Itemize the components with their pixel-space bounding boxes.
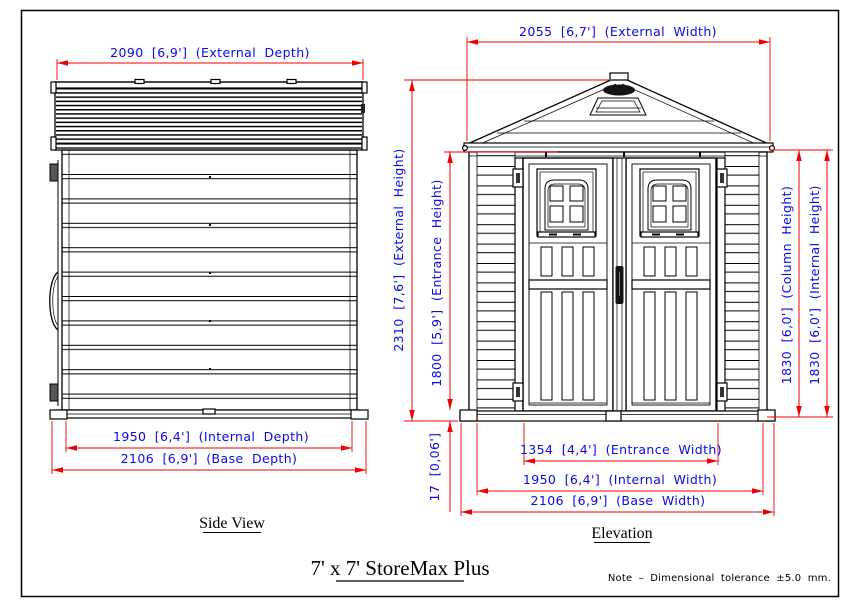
- side-door-handle: [50, 272, 58, 330]
- window-sill: [538, 232, 595, 237]
- left-jamb: [515, 158, 523, 411]
- external-depth-label: 2090 [6,9'] (External Depth): [110, 45, 310, 60]
- column-height-label: 1830 [6,0'] (Column Height): [779, 186, 794, 385]
- entrance-height-label: 1800 [5,9'] (Entrance Height): [429, 179, 444, 386]
- internal-width-label: 1950 [6,4'] (Internal Width): [523, 472, 717, 487]
- right-siding-panel: [725, 152, 759, 411]
- center-stiles: [613, 158, 626, 411]
- eave-board: [463, 143, 775, 152]
- dim-external-depth: 2090 [6,9'] (External Depth): [57, 45, 363, 80]
- roof-notch: [287, 80, 296, 84]
- dim-column-height: 1830 [6,0'] (Column Height): [767, 150, 833, 417]
- tolerance-note: Note – Dimensional tolerance ±5.0 mm.: [608, 573, 831, 584]
- drawing-sheet: 2090 [6,9'] (External Depth) 1950 [6,4']…: [0, 0, 860, 608]
- side-view: 2090 [6,9'] (External Depth) 1950 [6,4']…: [50, 45, 368, 533]
- internal-depth-label: 1950 [6,4'] (Internal Depth): [113, 429, 309, 444]
- base-depth-label: 2106 [6,9'] (Base Depth): [121, 451, 298, 466]
- drawing-title: 7' x 7' StoreMax Plus: [310, 556, 489, 580]
- elevation-base: [460, 410, 775, 421]
- external-height-label: 2310 [7,6'] (External Height): [391, 148, 406, 351]
- dim-base-width: 2106 [6,9'] (Base Width): [461, 423, 774, 516]
- gable-vent-icon: [590, 98, 646, 115]
- roof-apex-cap: [610, 73, 628, 80]
- left-siding-panel: [477, 152, 515, 411]
- base-height-label: 17 [0,06']: [427, 433, 442, 502]
- roof-notch: [135, 80, 144, 84]
- side-view-roof: [51, 80, 367, 151]
- brand-logo: [603, 85, 635, 96]
- dim-internal-depth: 1950 [6,4'] (Internal Depth): [66, 421, 352, 452]
- left-door: [523, 158, 613, 411]
- entrance-width-label: 1354 [4,4'] (Entrance Width): [520, 442, 722, 457]
- elevation-view: 2055 [6,7'] (External Width) 2310 [7,6']…: [391, 24, 833, 543]
- side-view-wall: [58, 150, 357, 410]
- door-rail: [529, 280, 607, 289]
- elevation-label: Elevation: [591, 525, 652, 542]
- dim-internal-height: 1830 [6,0'] (Internal Height): [807, 150, 827, 417]
- external-width-label: 2055 [6,7'] (External Width): [519, 24, 717, 39]
- base-foot: [758, 410, 775, 421]
- base-foot: [606, 411, 621, 421]
- side-hinge-top: [50, 164, 58, 181]
- dim-internal-width: 1950 [6,4'] (Internal Width): [477, 423, 763, 495]
- roof-latch: [361, 104, 365, 113]
- door-window: [537, 169, 596, 237]
- base-width-label: 2106 [6,9'] (Base Width): [531, 493, 706, 508]
- elevation-roof: [463, 73, 775, 152]
- roof-notch: [211, 80, 220, 84]
- base-foot: [50, 410, 67, 419]
- technical-drawing: 2090 [6,9'] (External Depth) 1950 [6,4']…: [0, 0, 860, 608]
- double-doors: [513, 158, 727, 411]
- right-door: [626, 158, 716, 411]
- dim-entrance-width: 1354 [4,4'] (Entrance Width): [520, 423, 722, 465]
- dim-base-height: 17 [0,06']: [427, 421, 450, 512]
- side-view-base: [50, 409, 368, 419]
- base-foot: [203, 409, 215, 414]
- side-view-label: Side View: [199, 515, 265, 532]
- side-hinge-bottom: [50, 384, 58, 401]
- base-foot: [460, 410, 477, 421]
- right-jamb: [717, 158, 725, 411]
- internal-height-label: 1830 [6,0'] (Internal Height): [807, 185, 822, 385]
- base-foot: [351, 410, 368, 419]
